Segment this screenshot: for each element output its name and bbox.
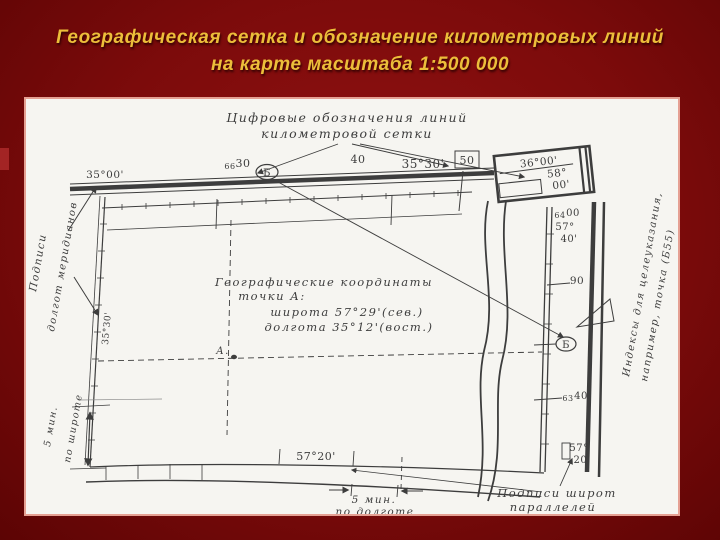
caption-pointer-triangle (577, 299, 614, 327)
lat-extent-line1: 5 мин. (42, 405, 60, 448)
km-line-6630: 30 (236, 157, 251, 170)
km-line-6630-prefix: 66 (224, 162, 235, 171)
right-oval-letter: Б (562, 340, 570, 351)
km-line-6340-prefix: 63 (562, 394, 573, 403)
slide-title-line2: на карте масштаба 1:500 000 (0, 51, 720, 78)
lat-extent-line2: по широте (62, 393, 85, 464)
ne-corner-lat-min: 00' (552, 178, 571, 192)
diagram-panel: Цифровые обозначения линий километровой … (24, 97, 680, 516)
lat-57-40-min: 40' (561, 234, 578, 245)
right-oval-leader (534, 344, 556, 345)
slide: Географическая сетка и обозначение килом… (0, 0, 720, 540)
bottom-caption-arrow-up (560, 459, 572, 486)
left-caption-line1: Подписи (27, 233, 49, 294)
km-6340-line (534, 398, 562, 400)
coords-note-line4: долгота 35°12'(вост.) (265, 320, 434, 334)
km-line-6400: 00 (566, 208, 580, 219)
top-oval-letter: Б (263, 168, 271, 179)
mid-meridian-label: 35°30' (402, 157, 445, 171)
lat-57-40-deg: 57° (555, 222, 574, 233)
coords-note-line3: широта 57°29'(сев.) (270, 305, 423, 319)
bottom-caption-leader-left (352, 470, 542, 492)
km-line-6400-prefix: 64 (554, 211, 565, 220)
nw-corner-longitude: 35°00' (86, 169, 124, 181)
left-edge-artifact (0, 148, 9, 170)
bottom-caption-line1: Подписи широт (496, 486, 617, 500)
bottom-parallel-label: 57°20' (296, 450, 336, 463)
slide-title: Географическая сетка и обозначение килом… (0, 24, 720, 78)
bottom-caption-line2: параллелей (510, 500, 596, 514)
slide-title-line1: Географическая сетка и обозначение килом… (0, 24, 720, 51)
top-caption-line1: Цифровые обозначения линий (226, 110, 467, 125)
km-line-50: 50 (460, 154, 475, 167)
km-line-6340: 40 (574, 391, 588, 402)
km-line-90: 90 (570, 275, 584, 287)
map-diagram: Цифровые обозначения линий километровой … (26, 99, 678, 514)
point-a-label: А. (215, 346, 230, 357)
coords-note-line1: Географические координаты (214, 275, 433, 289)
lon-extent-line1: 5 мин. (352, 494, 397, 506)
point-a-dot (231, 355, 237, 359)
left-meridian-vertical-label: 35°30' (101, 312, 114, 346)
lat-extent-arrow (88, 413, 90, 465)
lat-57-20-deg: 57° (569, 443, 588, 454)
lon-extent-line2: по долготе (336, 506, 415, 514)
top-caption-line2: километровой сетки (261, 126, 433, 141)
lat-57-20-min: 20' (574, 455, 591, 466)
km-line-40: 40 (351, 153, 366, 166)
coords-note-line2: точки А: (238, 289, 306, 303)
